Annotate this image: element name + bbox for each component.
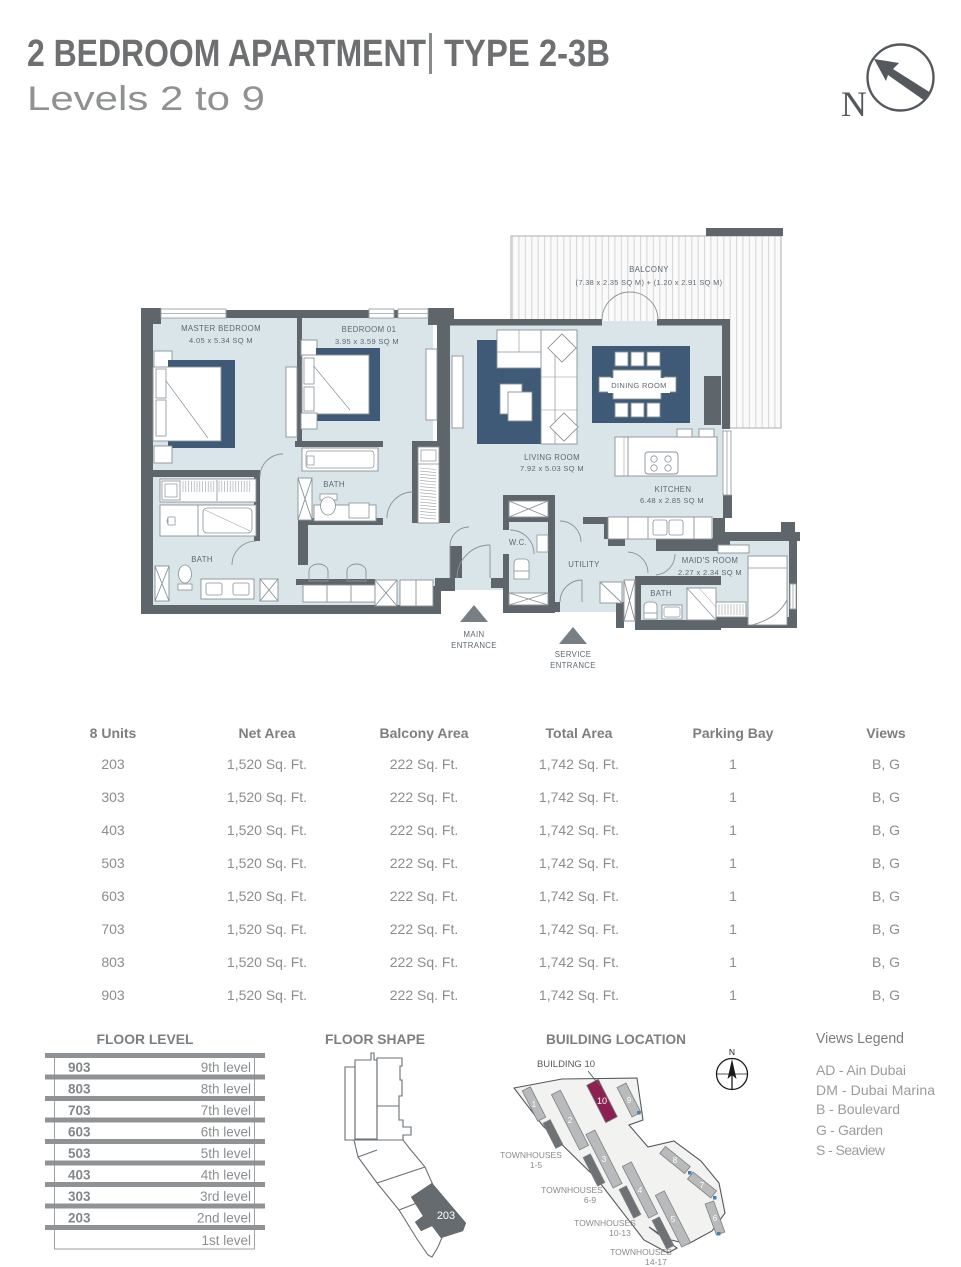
svg-text:W.C.: W.C. — [509, 538, 527, 547]
svg-text:B, G: B, G — [872, 855, 900, 871]
svg-text:BATH: BATH — [191, 555, 213, 564]
svg-text:5: 5 — [671, 1215, 676, 1224]
svg-text:Parking Bay: Parking Bay — [693, 725, 774, 741]
svg-text:BALCONY: BALCONY — [629, 265, 669, 274]
svg-text:9th level: 9th level — [201, 1060, 251, 1075]
svg-text:1st level: 1st level — [201, 1233, 251, 1248]
svg-text:DINING ROOM: DINING ROOM — [611, 381, 667, 390]
svg-text:3: 3 — [602, 1155, 607, 1164]
svg-text:G - Garden: G - Garden — [816, 1122, 883, 1138]
svg-text:LIVING ROOM: LIVING ROOM — [524, 453, 580, 462]
svg-text:222 Sq. Ft.: 222 Sq. Ft. — [390, 987, 458, 1003]
svg-text:803: 803 — [101, 954, 125, 970]
svg-text:1,520 Sq. Ft.: 1,520 Sq. Ft. — [227, 855, 307, 871]
svg-text:1,742 Sq. Ft.: 1,742 Sq. Ft. — [539, 921, 619, 937]
svg-text:(7.38 x 2.35 SQ M) + (1.20 x 2: (7.38 x 2.35 SQ M) + (1.20 x 2.91 SQ M) — [576, 278, 723, 287]
svg-text:Levels 2 to 9: Levels 2 to 9 — [27, 80, 265, 118]
svg-text:B, G: B, G — [872, 822, 900, 838]
svg-text:222 Sq. Ft.: 222 Sq. Ft. — [390, 954, 458, 970]
svg-text:6-9: 6-9 — [584, 1195, 597, 1205]
svg-text:14-17: 14-17 — [645, 1257, 667, 1267]
svg-text:ENTRANCE: ENTRANCE — [451, 641, 497, 650]
svg-text:1,742 Sq. Ft.: 1,742 Sq. Ft. — [539, 756, 619, 772]
svg-text:Views Legend: Views Legend — [816, 1030, 904, 1047]
svg-text:1,742 Sq. Ft.: 1,742 Sq. Ft. — [539, 855, 619, 871]
svg-text:10: 10 — [597, 1096, 607, 1106]
svg-text:5th level: 5th level — [201, 1146, 251, 1161]
svg-text:4.05 x 5.34 SQ M: 4.05 x 5.34 SQ M — [189, 336, 253, 345]
svg-text:FLOOR SHAPE: FLOOR SHAPE — [325, 1032, 425, 1047]
svg-text:7.92 x 5.03 SQ M: 7.92 x 5.03 SQ M — [520, 464, 584, 473]
svg-text:903: 903 — [101, 987, 125, 1003]
svg-text:B - Boulevard: B - Boulevard — [816, 1101, 900, 1117]
svg-text:Views: Views — [866, 725, 906, 741]
svg-text:BUILDING 10: BUILDING 10 — [537, 1059, 595, 1070]
svg-text:1: 1 — [729, 921, 737, 937]
svg-text:BATH: BATH — [650, 589, 672, 598]
svg-text:8 Units: 8 Units — [90, 725, 137, 741]
svg-text:Net Area: Net Area — [238, 725, 295, 741]
svg-text:TYPE 2-3B: TYPE 2-3B — [444, 33, 610, 75]
svg-text:4: 4 — [638, 1186, 643, 1195]
svg-text:B, G: B, G — [872, 954, 900, 970]
svg-text:203: 203 — [101, 756, 125, 772]
svg-text:222 Sq. Ft.: 222 Sq. Ft. — [390, 822, 458, 838]
svg-text:1,742 Sq. Ft.: 1,742 Sq. Ft. — [539, 954, 619, 970]
svg-text:B, G: B, G — [872, 987, 900, 1003]
svg-text:MAID'S ROOM: MAID'S ROOM — [682, 556, 738, 565]
svg-text:KITCHEN: KITCHEN — [655, 485, 692, 494]
svg-text:1-5: 1-5 — [530, 1160, 543, 1170]
svg-text:1,520 Sq. Ft.: 1,520 Sq. Ft. — [227, 756, 307, 772]
svg-text:BEDROOM 01: BEDROOM 01 — [342, 325, 397, 334]
svg-text:1: 1 — [729, 954, 737, 970]
svg-text:B, G: B, G — [872, 921, 900, 937]
svg-text:1: 1 — [729, 855, 737, 871]
svg-text:6th level: 6th level — [201, 1125, 251, 1140]
svg-text:B, G: B, G — [872, 789, 900, 805]
svg-text:703: 703 — [68, 1103, 91, 1118]
svg-text:TOWNHOUSES: TOWNHOUSES — [574, 1218, 636, 1228]
svg-text:1,742 Sq. Ft.: 1,742 Sq. Ft. — [539, 888, 619, 904]
svg-text:8th level: 8th level — [201, 1082, 251, 1097]
svg-text:B, G: B, G — [872, 756, 900, 772]
svg-text:N: N — [841, 84, 867, 124]
svg-text:903: 903 — [68, 1060, 91, 1075]
svg-text:1,520 Sq. Ft.: 1,520 Sq. Ft. — [227, 789, 307, 805]
svg-text:3.95 x 3.59 SQ M: 3.95 x 3.59 SQ M — [335, 337, 399, 346]
svg-text:MASTER BEDROOM: MASTER BEDROOM — [181, 324, 261, 333]
svg-text:6.48 x 2.85 SQ M: 6.48 x 2.85 SQ M — [640, 496, 704, 505]
svg-text:1,520 Sq. Ft.: 1,520 Sq. Ft. — [227, 921, 307, 937]
svg-text:7th level: 7th level — [201, 1103, 251, 1118]
svg-text:8: 8 — [673, 1156, 678, 1165]
svg-text:222 Sq. Ft.: 222 Sq. Ft. — [390, 789, 458, 805]
svg-text:3rd level: 3rd level — [200, 1189, 251, 1204]
svg-text:1,742 Sq. Ft.: 1,742 Sq. Ft. — [539, 789, 619, 805]
svg-text:603: 603 — [68, 1125, 91, 1140]
svg-text:10-13: 10-13 — [609, 1228, 631, 1238]
svg-text:703: 703 — [101, 921, 125, 937]
svg-text:1,742 Sq. Ft.: 1,742 Sq. Ft. — [539, 822, 619, 838]
svg-text:BATH: BATH — [323, 480, 345, 489]
svg-text:2nd level: 2nd level — [197, 1211, 251, 1226]
svg-text:222 Sq. Ft.: 222 Sq. Ft. — [390, 888, 458, 904]
svg-text:1: 1 — [532, 1100, 537, 1109]
svg-text:Balcony Area: Balcony Area — [380, 725, 469, 741]
svg-text:2 BEDROOM APARTMENT: 2 BEDROOM APARTMENT — [27, 33, 426, 75]
svg-text:9: 9 — [627, 1096, 632, 1105]
svg-text:303: 303 — [101, 789, 125, 805]
svg-text:1: 1 — [729, 789, 737, 805]
svg-text:7: 7 — [700, 1181, 705, 1190]
svg-text:203: 203 — [437, 1210, 455, 1222]
svg-text:N: N — [729, 1047, 735, 1057]
svg-text:S - Seaview: S - Seaview — [816, 1142, 886, 1158]
svg-text:TOWNHOUSES: TOWNHOUSES — [500, 1150, 562, 1160]
svg-text:303: 303 — [68, 1189, 91, 1204]
svg-text:SERVICE: SERVICE — [555, 650, 592, 659]
svg-text:1,520 Sq. Ft.: 1,520 Sq. Ft. — [227, 888, 307, 904]
svg-text:6: 6 — [713, 1214, 718, 1223]
svg-text:UTILITY: UTILITY — [568, 560, 600, 569]
svg-text:TOWNHOUSES: TOWNHOUSES — [541, 1185, 603, 1195]
svg-text:222 Sq. Ft.: 222 Sq. Ft. — [390, 855, 458, 871]
svg-text:1,742 Sq. Ft.: 1,742 Sq. Ft. — [539, 987, 619, 1003]
svg-text:403: 403 — [101, 822, 125, 838]
svg-text:MAIN: MAIN — [464, 630, 485, 639]
svg-text:203: 203 — [68, 1211, 91, 1226]
svg-text:222 Sq. Ft.: 222 Sq. Ft. — [390, 756, 458, 772]
svg-text:403: 403 — [68, 1168, 91, 1183]
svg-text:1: 1 — [729, 888, 737, 904]
svg-text:1: 1 — [729, 822, 737, 838]
svg-text:1,520 Sq. Ft.: 1,520 Sq. Ft. — [227, 954, 307, 970]
svg-text:803: 803 — [68, 1082, 91, 1097]
svg-text:4th level: 4th level — [201, 1168, 251, 1183]
svg-text:AD - Ain Dubai: AD - Ain Dubai — [816, 1062, 906, 1078]
svg-text:503: 503 — [68, 1146, 91, 1161]
svg-text:FLOOR LEVEL: FLOOR LEVEL — [97, 1032, 194, 1047]
svg-text:ENTRANCE: ENTRANCE — [550, 661, 596, 670]
svg-text:1,520 Sq. Ft.: 1,520 Sq. Ft. — [227, 987, 307, 1003]
svg-text:DM - Dubai Marina: DM - Dubai Marina — [816, 1082, 935, 1098]
svg-text:BUILDING LOCATION: BUILDING LOCATION — [546, 1032, 686, 1047]
svg-text:222 Sq. Ft.: 222 Sq. Ft. — [390, 921, 458, 937]
svg-text:TOWNHOUSES: TOWNHOUSES — [610, 1247, 672, 1257]
svg-text:B, G: B, G — [872, 888, 900, 904]
svg-text:Total Area: Total Area — [546, 725, 613, 741]
svg-text:2: 2 — [568, 1116, 573, 1125]
svg-text:1: 1 — [729, 987, 737, 1003]
svg-text:1: 1 — [729, 756, 737, 772]
svg-text:603: 603 — [101, 888, 125, 904]
svg-text:1,520 Sq. Ft.: 1,520 Sq. Ft. — [227, 822, 307, 838]
svg-text:503: 503 — [101, 855, 125, 871]
svg-text:2.27 x 2.34 SQ M: 2.27 x 2.34 SQ M — [678, 568, 742, 577]
